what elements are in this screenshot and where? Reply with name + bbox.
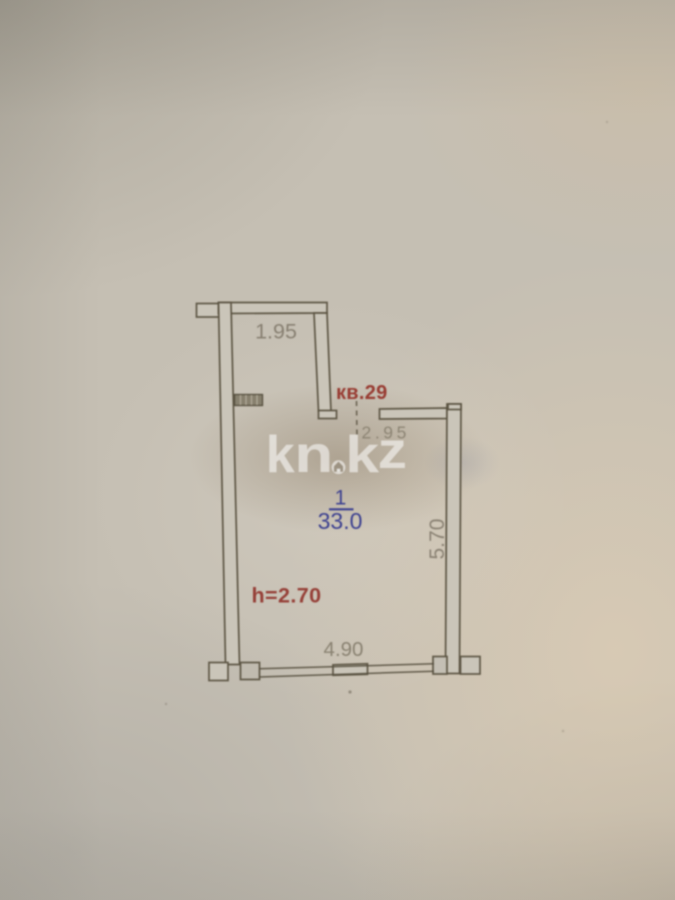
svg-text:кв.29: кв.29 — [336, 382, 388, 404]
svg-text:z: z — [378, 421, 407, 479]
svg-text:k: k — [266, 426, 295, 484]
svg-text:33.0: 33.0 — [318, 508, 363, 534]
svg-text:k: k — [345, 425, 379, 483]
svg-text:1: 1 — [335, 487, 347, 510]
svg-text:5.70: 5.70 — [426, 519, 449, 560]
svg-text:n: n — [294, 426, 333, 484]
svg-text:1.95: 1.95 — [255, 320, 297, 344]
svg-text:4.90: 4.90 — [324, 638, 364, 661]
svg-text:h=2.70: h=2.70 — [252, 584, 322, 608]
